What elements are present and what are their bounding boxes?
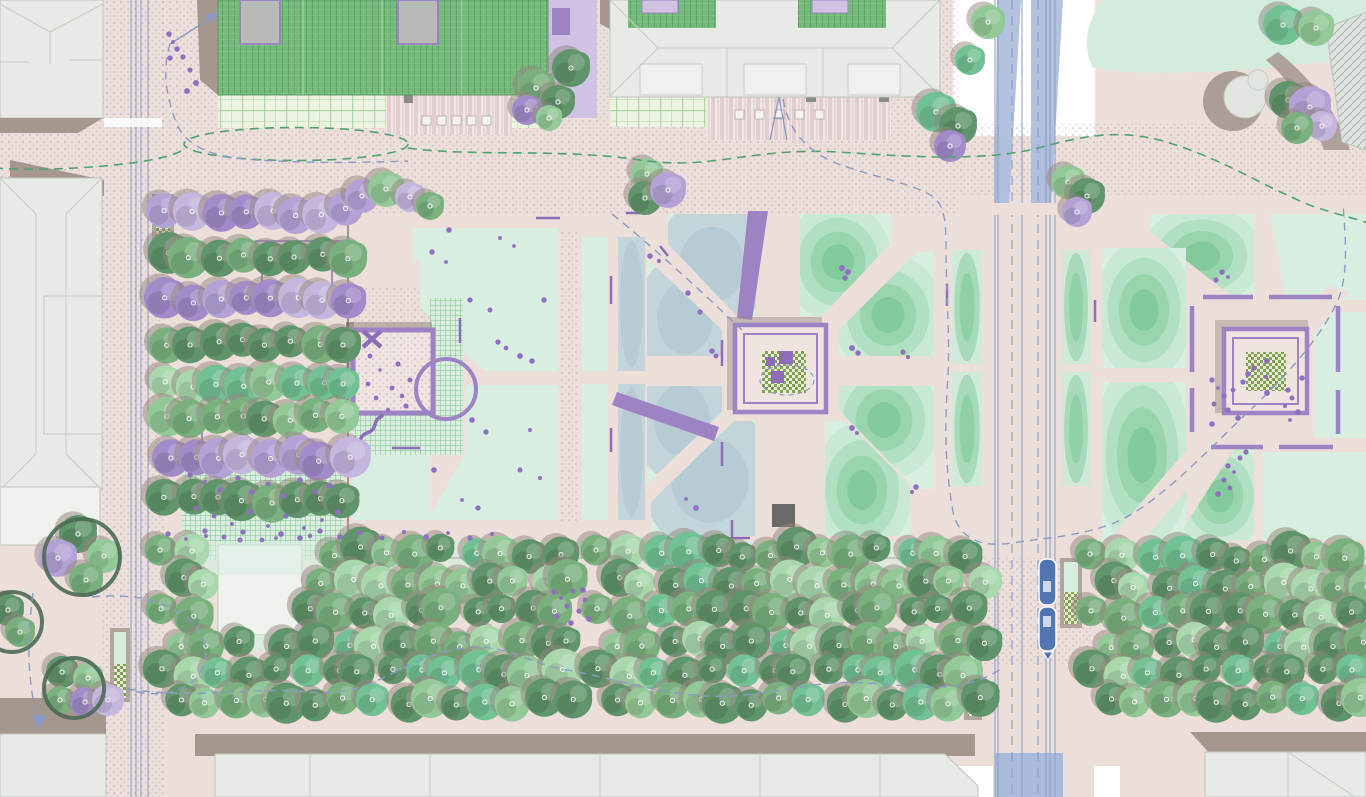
- road-strip-2: [952, 372, 982, 486]
- road-strip-1: [952, 250, 982, 364]
- lavender-room: [552, 8, 570, 35]
- g3-flat-se: [1262, 452, 1366, 540]
- road-strip-3: [1062, 250, 1090, 364]
- site-plan-stage: [0, 0, 1366, 797]
- road-asphalt-bottom-right: [1094, 766, 1120, 797]
- strip-mint-2: [582, 384, 608, 520]
- g3-flat-ne: [1270, 214, 1366, 300]
- strip-water-1: [618, 237, 645, 371]
- building-sw: [0, 734, 106, 797]
- stipple-garden-band: [560, 230, 578, 522]
- site-plan-canvas[interactable]: [0, 0, 1366, 797]
- pavilion2-plot-a: [766, 357, 775, 366]
- grayhall-room-a: [642, 0, 678, 13]
- g3-petal-nw: [1095, 239, 1194, 380]
- greenhall-skylight-a: [240, 0, 280, 44]
- pavilion2-plot-c: [771, 371, 784, 383]
- tram-bridge-band: [995, 753, 1063, 797]
- tram-window-b: [1043, 616, 1051, 627]
- grayhall-room-b: [812, 0, 848, 13]
- pavilion3-parterre: [1246, 352, 1286, 391]
- tram-car-b: [1039, 607, 1056, 651]
- pavilion2-plot-b: [779, 351, 793, 364]
- crosswalk-left: [104, 118, 162, 127]
- building-w: [0, 178, 102, 490]
- building-nw: [0, 0, 103, 118]
- road-strip-4: [1062, 372, 1090, 486]
- grove-south-a: [138, 523, 592, 724]
- plan-layers: [0, 0, 1366, 797]
- grove-south-c: [1068, 527, 1366, 723]
- grayhall-bay-b: [744, 64, 806, 95]
- terrace1-post: [404, 95, 413, 103]
- greenhall-skylight-b: [398, 0, 438, 44]
- building-s: [215, 754, 978, 797]
- tram-window-a: [1043, 581, 1051, 592]
- fountain-basin-small: [1248, 70, 1268, 90]
- building-s-shadow: [195, 734, 975, 756]
- grayhall-bay-a: [640, 64, 702, 95]
- grayhall-bay-c: [848, 64, 900, 95]
- strip-mint-1: [582, 237, 608, 371]
- building-se: [1205, 752, 1366, 797]
